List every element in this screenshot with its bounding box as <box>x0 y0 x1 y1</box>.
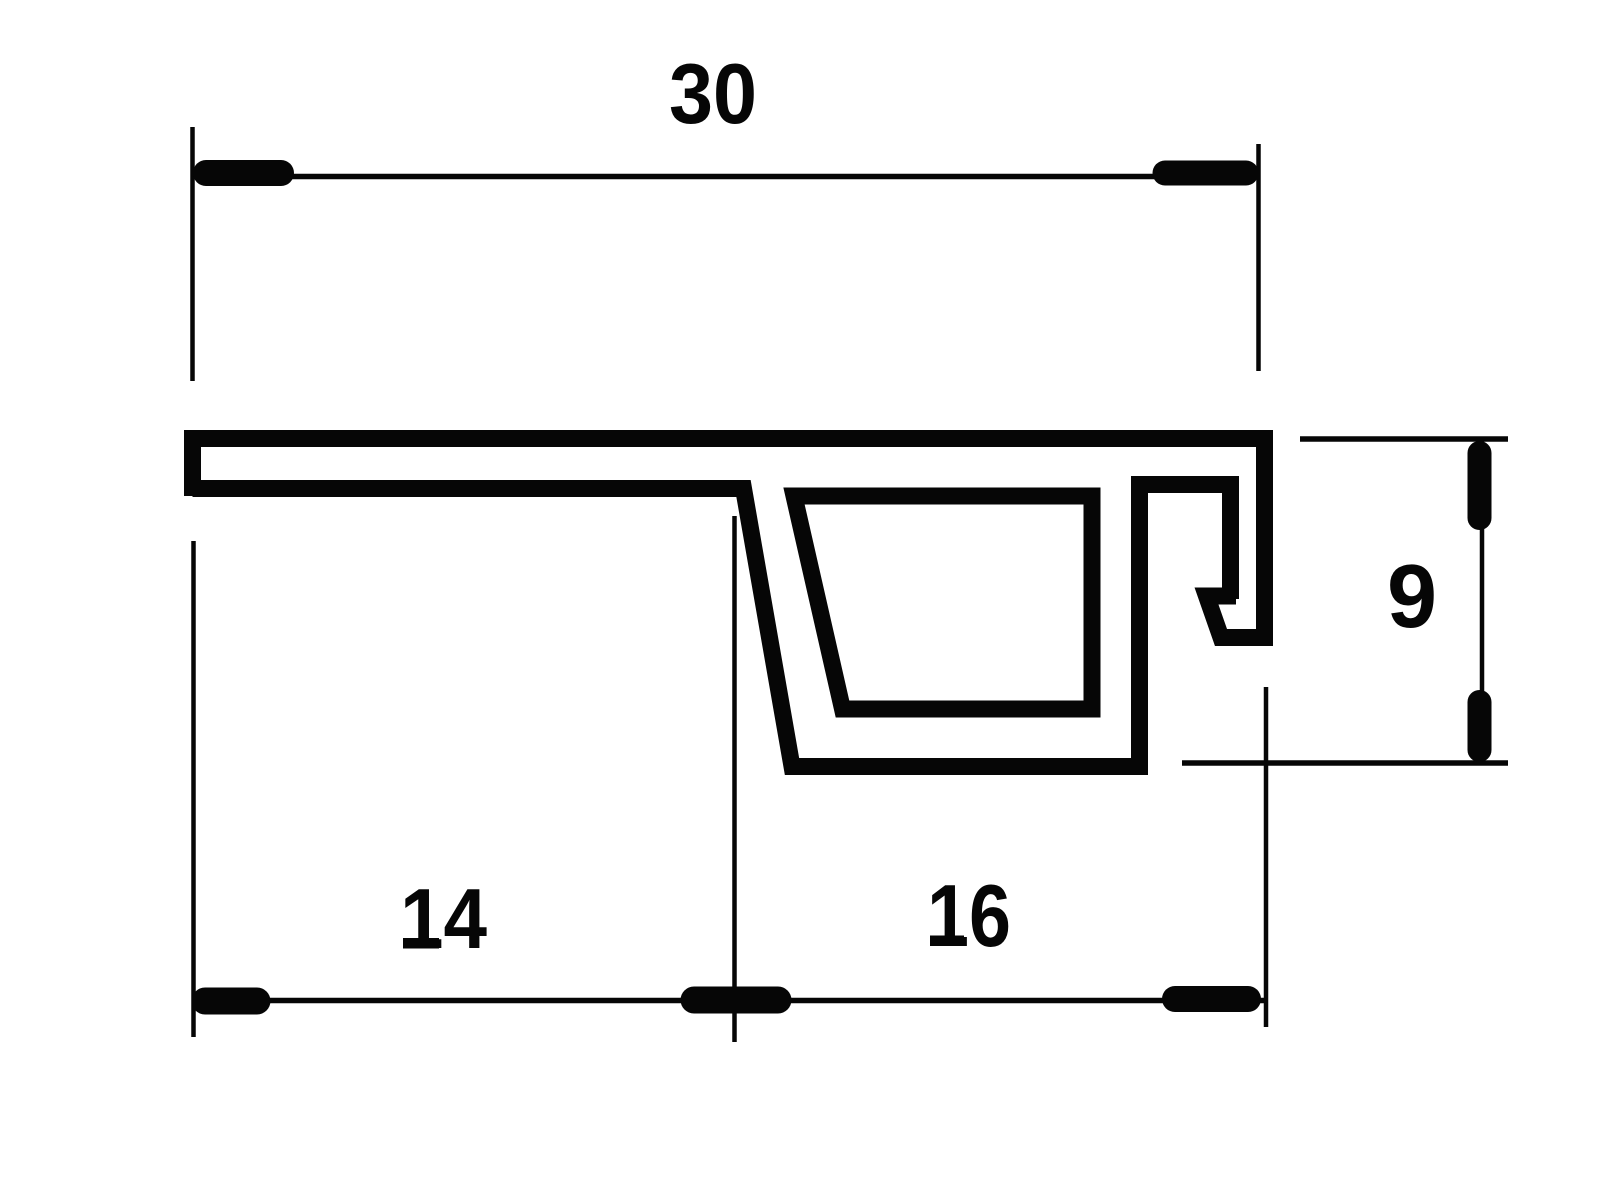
svg-text:16: 16 <box>927 866 1011 965</box>
svg-text:9: 9 <box>1387 547 1437 647</box>
svg-text:30: 30 <box>669 47 757 142</box>
svg-text:14: 14 <box>400 872 487 967</box>
